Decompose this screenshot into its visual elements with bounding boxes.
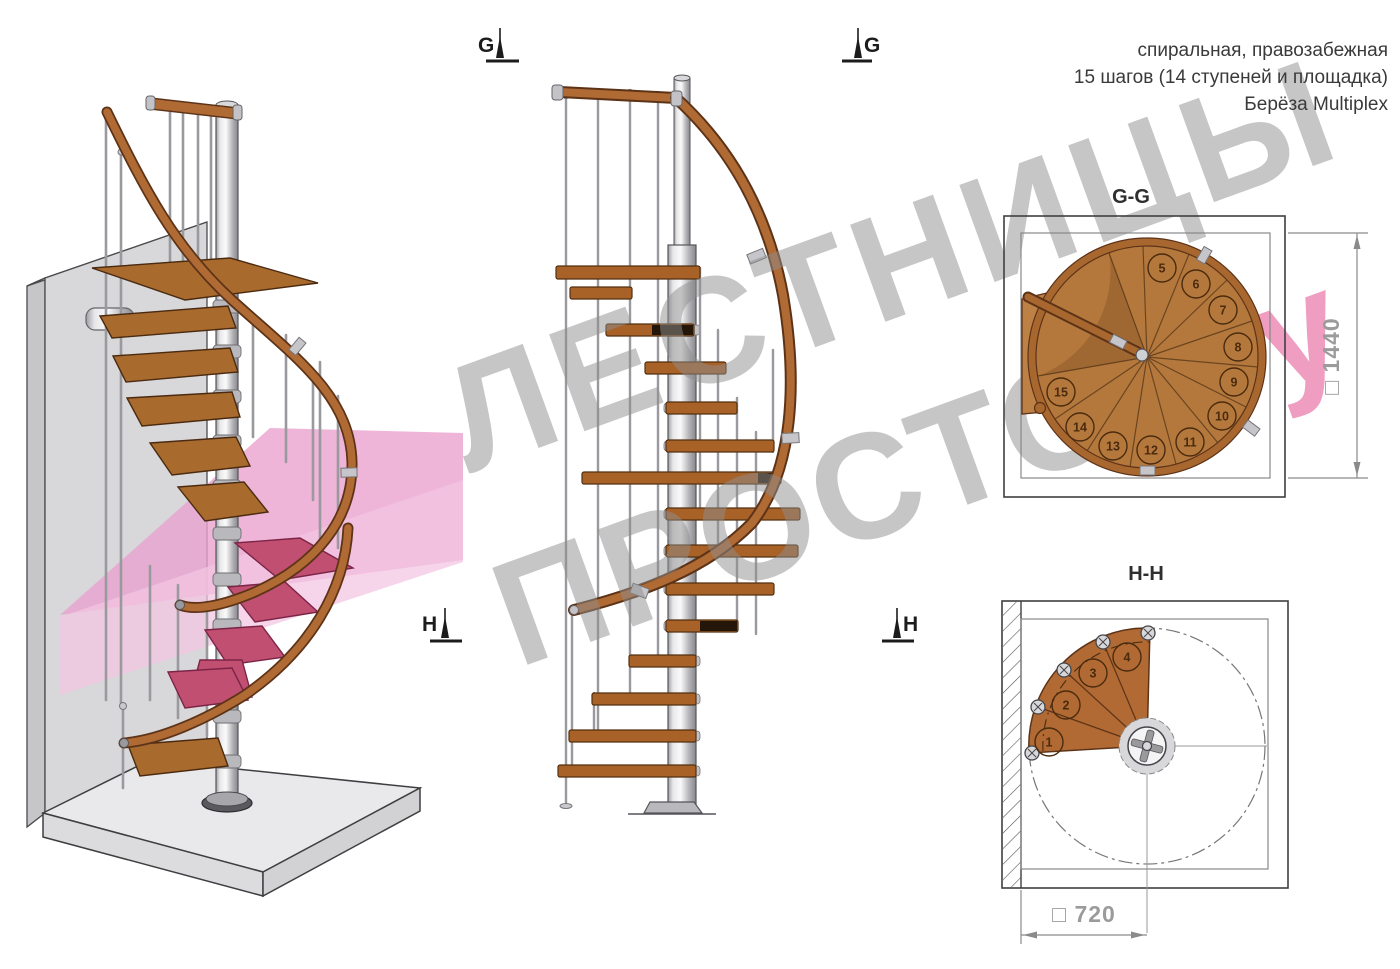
gg-step: 15 (1054, 386, 1068, 400)
section-marker-g-left: G (478, 28, 519, 61)
gg-step: 8 (1235, 341, 1242, 355)
column-flange-hh (1119, 718, 1175, 774)
wall-hatch (1003, 602, 1021, 887)
section-marker-g-right: G (842, 28, 880, 61)
gg-step: 12 (1144, 444, 1158, 458)
gg-step: 13 (1106, 440, 1120, 454)
drawing-sheet: ЛЕСТНИЦЫ ПРОСТО.Ру G G H H спиральная, п… (0, 0, 1400, 969)
dimension-720-label: □ 720 (1052, 901, 1116, 927)
landing-top-rail-3d (146, 96, 242, 120)
gg-step: 7 (1220, 304, 1227, 318)
header-line2: 15 шагов (14 ступеней и площадка) (1074, 67, 1388, 88)
plan-hh-title: H-H (1128, 563, 1164, 585)
dimension-720: □ 720 (1021, 890, 1147, 944)
header-line3: Берёза Multiplex (1244, 94, 1388, 115)
staircase-drawing: ЛЕСТНИЦЫ ПРОСТО.Ру G G H H спиральная, п… (0, 0, 1400, 969)
hh-step: 2 (1063, 699, 1070, 713)
marker-g-right-label: G (864, 34, 880, 57)
gg-step: 14 (1073, 421, 1087, 435)
dimension-1440-label: □ 1440 (1318, 317, 1344, 394)
gg-step: 5 (1159, 262, 1166, 276)
view-3d-perspective (27, 96, 463, 896)
plan-gg-title: G-G (1112, 186, 1150, 208)
gg-step: 9 (1231, 376, 1238, 390)
hh-step: 4 (1124, 651, 1131, 665)
plan-hh: H-H 1 2 3 4 (1002, 563, 1288, 944)
marker-h-left-label: H (422, 613, 437, 636)
gg-step: 10 (1215, 410, 1229, 424)
hh-step: 3 (1090, 667, 1097, 681)
gg-step: 11 (1183, 436, 1196, 450)
section-marker-h-right: H (882, 608, 918, 641)
gg-step: 6 (1193, 278, 1200, 292)
header-line1: спиральная, правозабежная (1138, 40, 1388, 61)
marker-g-left-label: G (478, 34, 494, 57)
marker-h-right-label: H (903, 613, 918, 636)
section-marker-h-left: H (422, 608, 462, 641)
hh-step: 1 (1046, 736, 1053, 750)
